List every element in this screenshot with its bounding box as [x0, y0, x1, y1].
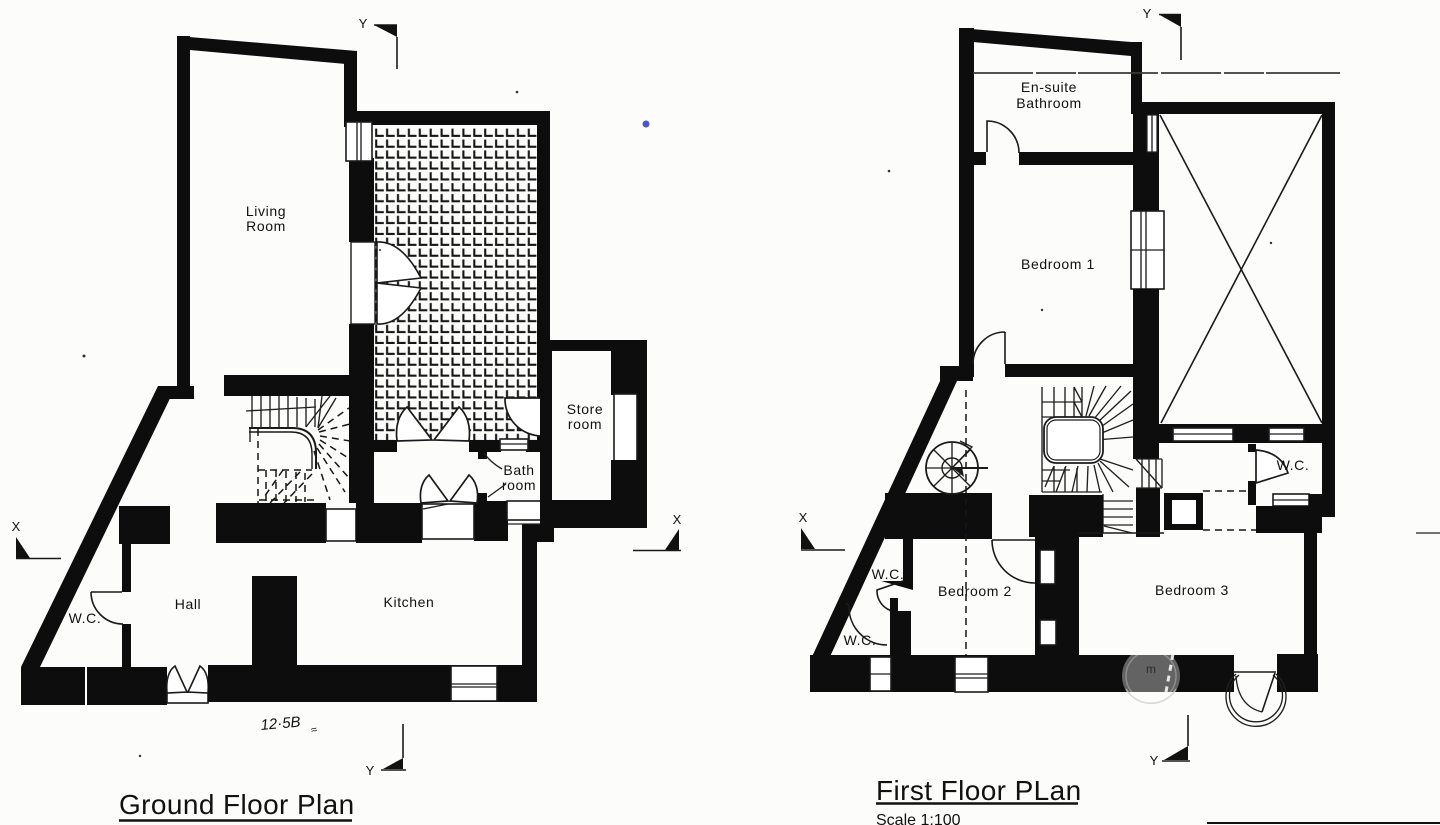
svg-text:Scale 1:100: Scale 1:100	[876, 812, 961, 825]
svg-text:room: room	[502, 477, 536, 493]
svg-text:Bathroom: Bathroom	[1016, 95, 1082, 111]
svg-text:Y: Y	[359, 16, 368, 31]
svg-text:room: room	[568, 416, 602, 432]
svg-text:12·5B: 12·5B	[260, 714, 301, 734]
svg-text:X: X	[12, 519, 21, 534]
svg-text:X: X	[673, 512, 682, 527]
svg-text:W.C.: W.C.	[872, 566, 905, 582]
svg-text:W.C.: W.C.	[69, 610, 102, 626]
svg-text:First Floor PLan: First Floor PLan	[876, 775, 1082, 806]
svg-text:En-suite: En-suite	[1021, 79, 1077, 95]
svg-text:X: X	[799, 510, 808, 525]
svg-text:Y: Y	[1143, 6, 1152, 21]
svg-text:Bath: Bath	[503, 462, 534, 478]
svg-text:Room: Room	[246, 218, 286, 234]
svg-text:Kitchen: Kitchen	[384, 594, 435, 610]
svg-text:m: m	[1146, 662, 1156, 676]
svg-text:W.C.: W.C.	[844, 632, 877, 648]
svg-text:Ground Floor Plan: Ground Floor Plan	[119, 789, 355, 820]
svg-text:Hall: Hall	[175, 596, 202, 612]
svg-text:W.C.: W.C.	[1277, 457, 1310, 473]
svg-text:Bedroom 3: Bedroom 3	[1155, 582, 1229, 598]
svg-text:Store: Store	[567, 401, 603, 417]
svg-text:Bedroom 1: Bedroom 1	[1021, 256, 1095, 272]
svg-text:Y: Y	[366, 763, 375, 778]
svg-text:Bedroom 2: Bedroom 2	[938, 583, 1012, 599]
svg-text:Living: Living	[246, 203, 286, 219]
svg-text:Y: Y	[1150, 753, 1159, 768]
